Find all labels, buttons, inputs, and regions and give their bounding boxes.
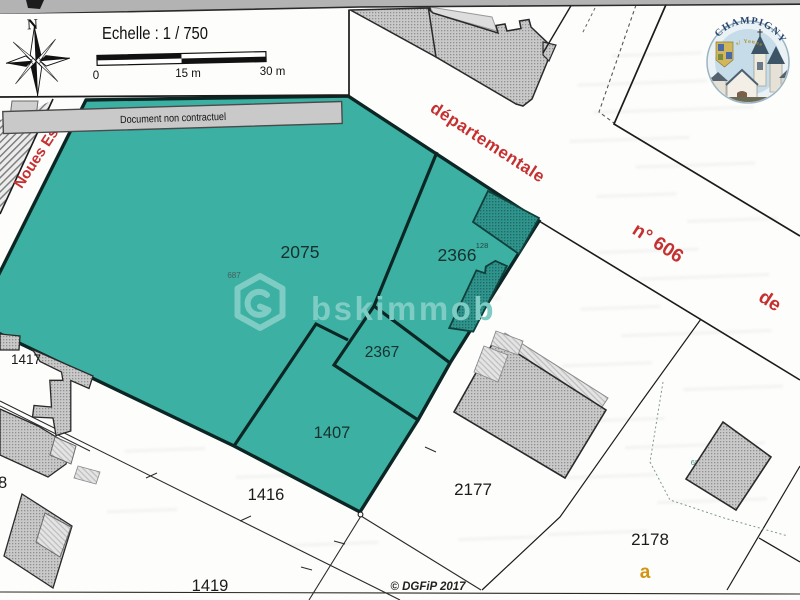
- svg-text:1416: 1416: [248, 486, 285, 504]
- svg-text:2075: 2075: [281, 242, 320, 262]
- svg-text:Echelle : 1 / 750: Echelle : 1 / 750: [102, 23, 208, 43]
- svg-text:2178: 2178: [631, 530, 669, 549]
- svg-text:a: a: [640, 562, 651, 583]
- svg-text:687: 687: [227, 271, 241, 280]
- svg-text:1417: 1417: [11, 352, 41, 367]
- svg-text:0: 0: [93, 70, 99, 82]
- svg-text:N: N: [27, 17, 39, 33]
- svg-text:bskimmob: bskimmob: [311, 290, 496, 327]
- svg-text:1407: 1407: [314, 424, 351, 442]
- svg-text:8: 8: [0, 474, 7, 492]
- svg-text:30 m: 30 m: [260, 66, 286, 78]
- svg-text:1419: 1419: [192, 577, 229, 595]
- svg-text:2366: 2366: [438, 245, 477, 265]
- svg-text:128: 128: [476, 241, 489, 250]
- svg-text:2367: 2367: [365, 344, 399, 361]
- svg-text:© DGFiP 2017: © DGFiP 2017: [390, 581, 466, 593]
- svg-text:2177: 2177: [454, 480, 492, 499]
- svg-text:15 m: 15 m: [175, 68, 201, 80]
